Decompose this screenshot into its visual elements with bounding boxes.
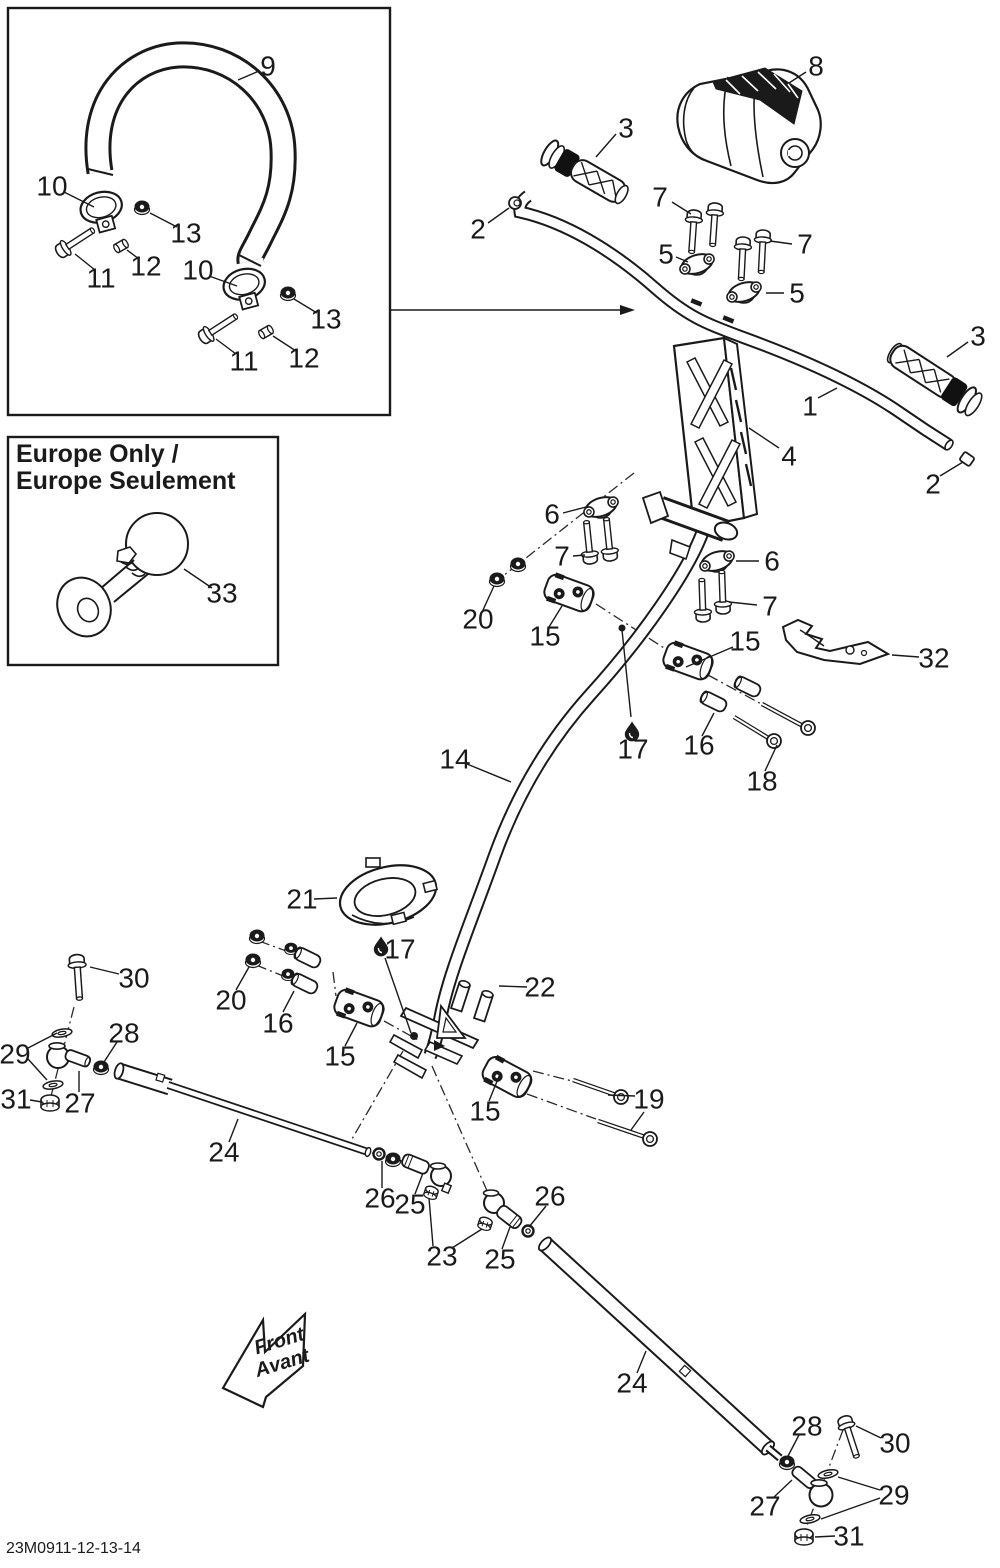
callout-15: 15 [324,1041,355,1072]
callout-28: 28 [108,1018,139,1049]
washer-26 [523,1226,534,1237]
callout-27: 27 [749,1491,780,1522]
nut-26 [386,1153,401,1167]
callout-25: 25 [484,1244,515,1275]
callout-14: 14 [439,744,470,775]
callout-17: 17 [384,934,415,965]
ref-dot [410,1032,418,1040]
callout-27: 27 [64,1088,95,1119]
callout-15: 15 [529,621,560,652]
callout-24: 24 [616,1368,647,1399]
parts-catalog-page: Europe Only / Europe Seulement [0,0,1000,1568]
callout-23: 23 [426,1241,457,1272]
callout-19: 19 [633,1084,664,1115]
callout-leader [608,1095,635,1096]
callout-leader [499,986,527,987]
callout-6: 6 [544,499,560,530]
callout-31: 31 [0,1084,31,1115]
callout-30: 30 [118,963,149,994]
callout-16: 16 [683,730,714,761]
callout-13: 13 [310,304,341,335]
callout-leader [573,555,585,556]
callout-26: 26 [534,1181,565,1212]
callout-4: 4 [781,441,797,472]
callout-20: 20 [462,604,493,635]
callout-33: 33 [206,578,237,609]
callout-24: 24 [208,1137,239,1168]
washer-26 [374,1149,385,1160]
callout-2: 2 [925,469,941,500]
nut-20 [490,573,505,587]
callout-15: 15 [729,626,760,657]
callout-11: 11 [229,346,258,377]
callout-12: 12 [288,343,319,374]
callout-1: 1 [802,391,818,422]
handle-nut-lower [281,287,296,301]
callout-20: 20 [215,985,246,1016]
callout-7: 7 [797,229,813,260]
europe-title-line2: Europe Seulement [16,467,236,495]
nut-28 [780,1456,795,1470]
grip-end-cap-left [509,197,521,209]
handle-nut-upper [135,201,150,215]
europe-title-line1: Europe Only / [16,440,179,468]
callout-9: 9 [260,51,276,82]
callout-32: 32 [918,643,949,674]
nut-20 [250,930,265,944]
callout-22: 22 [524,972,555,1003]
nut-31-right [795,1529,813,1545]
callout-31: 31 [833,1521,864,1552]
callout-6: 6 [764,546,780,577]
callout-11: 11 [86,263,115,294]
callout-12: 12 [130,251,161,282]
callout-16: 16 [262,1008,293,1039]
parts-diagram: Europe Only / Europe Seulement [0,0,1000,1568]
callout-15: 15 [469,1096,500,1127]
callout-26: 26 [364,1183,395,1214]
callout-21: 21 [286,884,317,915]
callout-10: 10 [182,255,213,286]
page-background [0,0,1000,1568]
callout-29: 29 [878,1480,909,1511]
callout-13: 13 [170,218,201,249]
figure-code: 23M0911-12-13-14 [6,1540,141,1557]
callout-10: 10 [36,171,67,202]
callout-5: 5 [658,239,674,270]
callout-3: 3 [618,113,634,144]
callout-25: 25 [394,1189,425,1220]
callout-17: 17 [617,734,648,765]
callout-7: 7 [652,182,668,213]
callout-28: 28 [791,1411,822,1442]
callout-8: 8 [808,51,824,82]
callout-5: 5 [789,278,805,309]
callout-3: 3 [970,321,986,352]
callout-29: 29 [0,1039,31,1070]
nut-28 [94,1061,109,1075]
callout-7: 7 [762,591,778,622]
nut-20 [246,954,261,968]
callout-7: 7 [554,541,570,572]
nut-31-left [41,1095,59,1111]
nut-20 [511,558,526,572]
callout-leader [815,1536,835,1537]
callout-18: 18 [746,766,777,797]
callout-30: 30 [879,1428,910,1459]
callout-2: 2 [470,214,486,245]
